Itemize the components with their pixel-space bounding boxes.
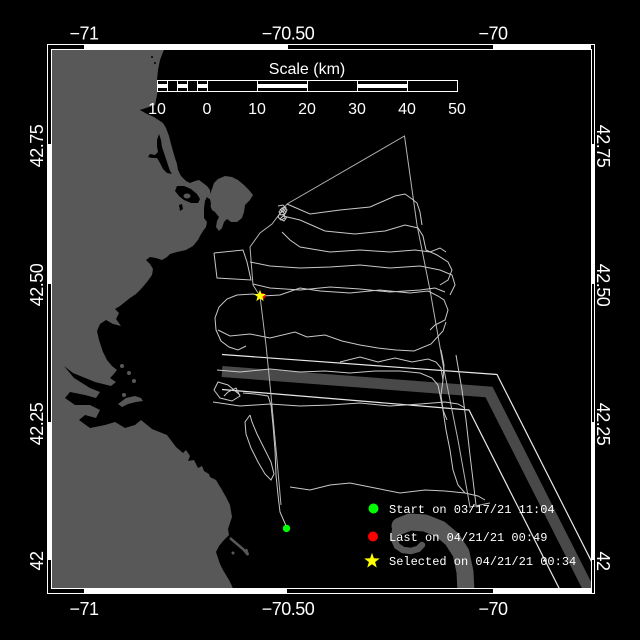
svg-text:42.50: 42.50 <box>27 263 47 306</box>
svg-text:0: 0 <box>203 101 212 118</box>
svg-text:−70.50: −70.50 <box>262 599 315 619</box>
svg-text:−70.50: −70.50 <box>262 24 315 44</box>
svg-text:42.50: 42.50 <box>593 264 613 307</box>
svg-text:−70: −70 <box>478 24 508 44</box>
svg-text:42.25: 42.25 <box>593 403 613 446</box>
svg-text:20: 20 <box>298 101 316 118</box>
svg-text:−71: −71 <box>69 24 99 44</box>
svg-text:42.75: 42.75 <box>593 125 613 168</box>
svg-text:10: 10 <box>248 101 266 118</box>
svg-text:Last on 04/21/21 00:49: Last on 04/21/21 00:49 <box>389 531 547 545</box>
svg-text:Selected on 04/21/21 00:34: Selected on 04/21/21 00:34 <box>389 555 576 569</box>
svg-text:30: 30 <box>348 101 366 118</box>
svg-text:10: 10 <box>148 101 166 118</box>
svg-text:Scale (km): Scale (km) <box>269 61 345 78</box>
svg-text:−70: −70 <box>478 599 508 619</box>
svg-text:−71: −71 <box>69 599 99 619</box>
svg-text:42: 42 <box>27 551 47 571</box>
svg-text:50: 50 <box>448 101 466 118</box>
svg-text:42: 42 <box>593 551 613 571</box>
svg-text:Start on 03/17/21 11:04: Start on 03/17/21 11:04 <box>389 503 555 517</box>
svg-text:40: 40 <box>398 101 416 118</box>
svg-text:42.75: 42.75 <box>27 124 47 167</box>
svg-text:42.25: 42.25 <box>27 402 47 445</box>
